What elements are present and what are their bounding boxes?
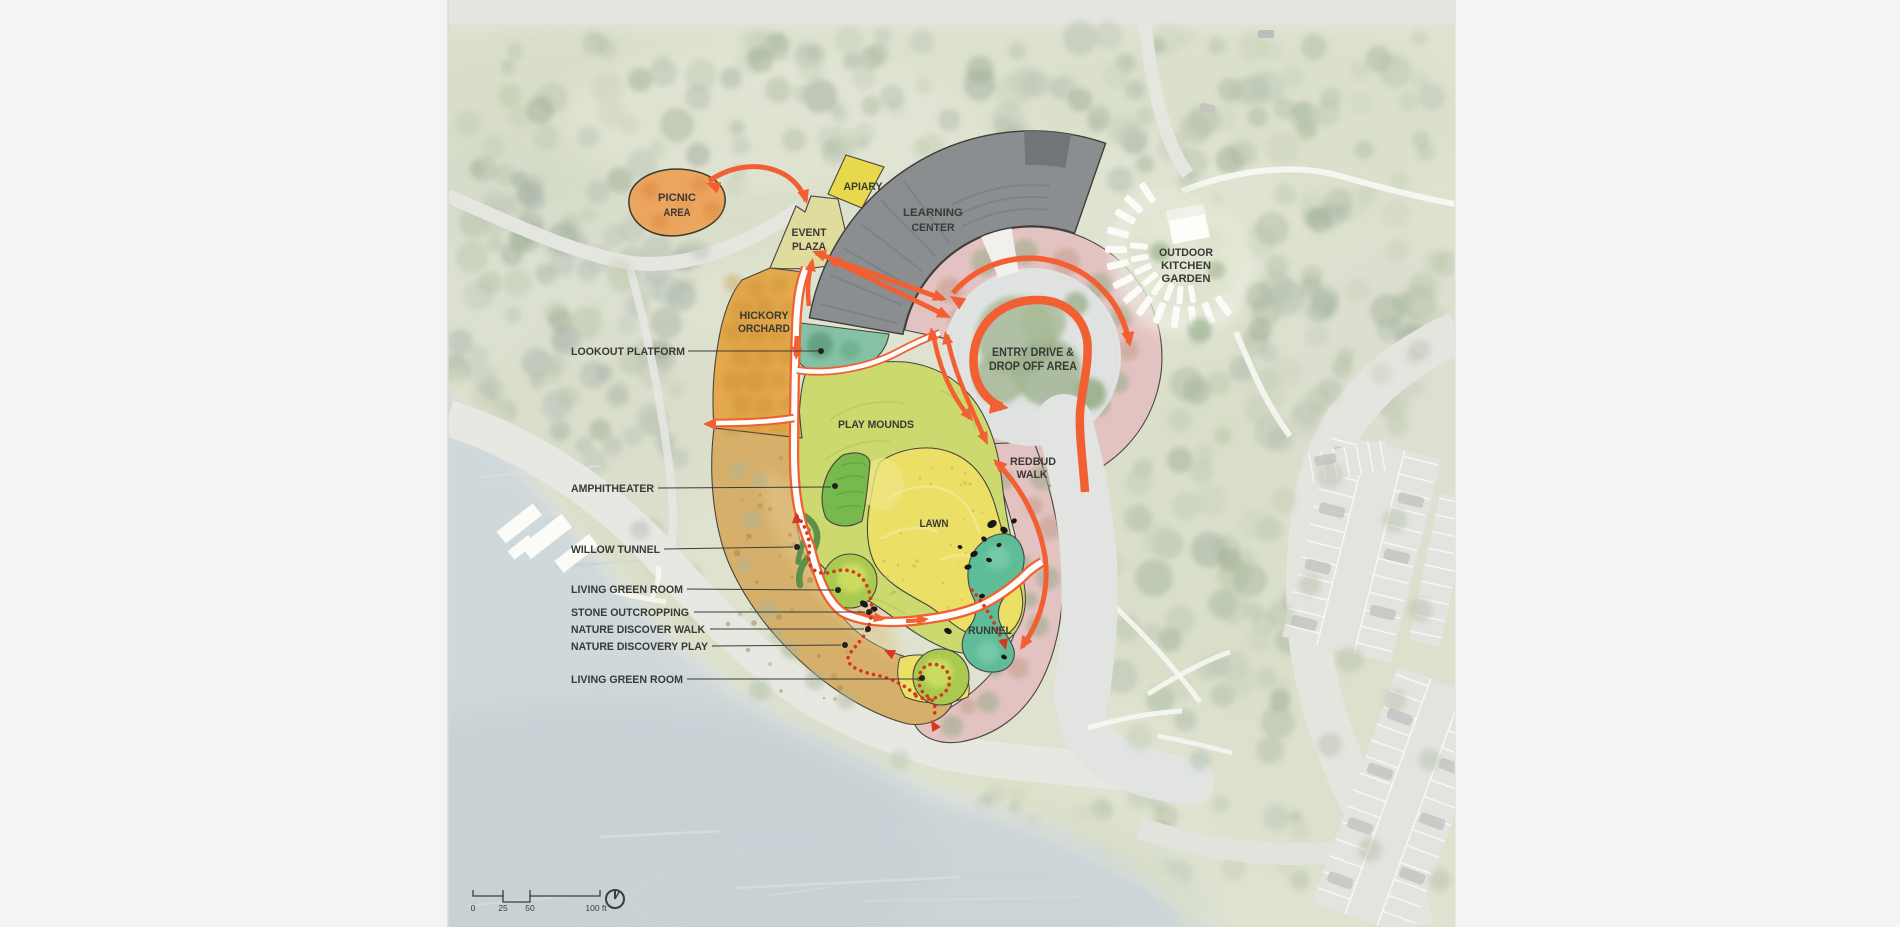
svg-text:APIARY: APIARY: [844, 181, 884, 193]
svg-text:NATURE DISCOVERY PLAY: NATURE DISCOVERY PLAY: [571, 641, 709, 653]
svg-text:NATURE DISCOVER WALK: NATURE DISCOVER WALK: [571, 624, 705, 636]
svg-text:50: 50: [525, 903, 535, 913]
svg-text:ENTRY DRIVE &: ENTRY DRIVE &: [992, 347, 1074, 359]
svg-text:GARDEN: GARDEN: [1162, 273, 1211, 285]
svg-text:RUNNEL: RUNNEL: [968, 625, 1012, 637]
svg-text:OUTDOOR: OUTDOOR: [1159, 247, 1213, 259]
svg-text:AREA: AREA: [664, 207, 691, 219]
svg-text:PICNIC: PICNIC: [658, 192, 696, 204]
svg-text:HICKORY: HICKORY: [740, 310, 790, 322]
svg-text:0: 0: [471, 903, 476, 913]
svg-text:ORCHARD: ORCHARD: [738, 323, 790, 335]
svg-text:LAWN: LAWN: [920, 518, 949, 530]
svg-text:WILLOW TUNNEL: WILLOW TUNNEL: [571, 544, 660, 556]
svg-text:STONE OUTCROPPING: STONE OUTCROPPING: [571, 607, 689, 619]
svg-text:PLAZA: PLAZA: [792, 241, 826, 253]
svg-text:KITCHEN: KITCHEN: [1161, 260, 1211, 272]
svg-text:PLAY MOUNDS: PLAY MOUNDS: [838, 419, 914, 431]
svg-text:25: 25: [498, 903, 508, 913]
svg-text:EVENT: EVENT: [792, 227, 827, 239]
svg-text:LIVING GREEN ROOM: LIVING GREEN ROOM: [571, 584, 683, 596]
svg-text:100 ft: 100 ft: [585, 903, 607, 913]
svg-text:LOOKOUT PLATFORM: LOOKOUT PLATFORM: [571, 346, 685, 358]
svg-text:WALK: WALK: [1017, 469, 1048, 481]
svg-text:REDBUD: REDBUD: [1010, 456, 1056, 468]
svg-text:LEARNING: LEARNING: [903, 207, 963, 219]
svg-text:CENTER: CENTER: [912, 222, 955, 234]
svg-text:DROP OFF AREA: DROP OFF AREA: [989, 361, 1077, 373]
svg-text:AMPHITHEATER: AMPHITHEATER: [571, 483, 654, 495]
svg-text:LIVING GREEN ROOM: LIVING GREEN ROOM: [571, 674, 683, 686]
